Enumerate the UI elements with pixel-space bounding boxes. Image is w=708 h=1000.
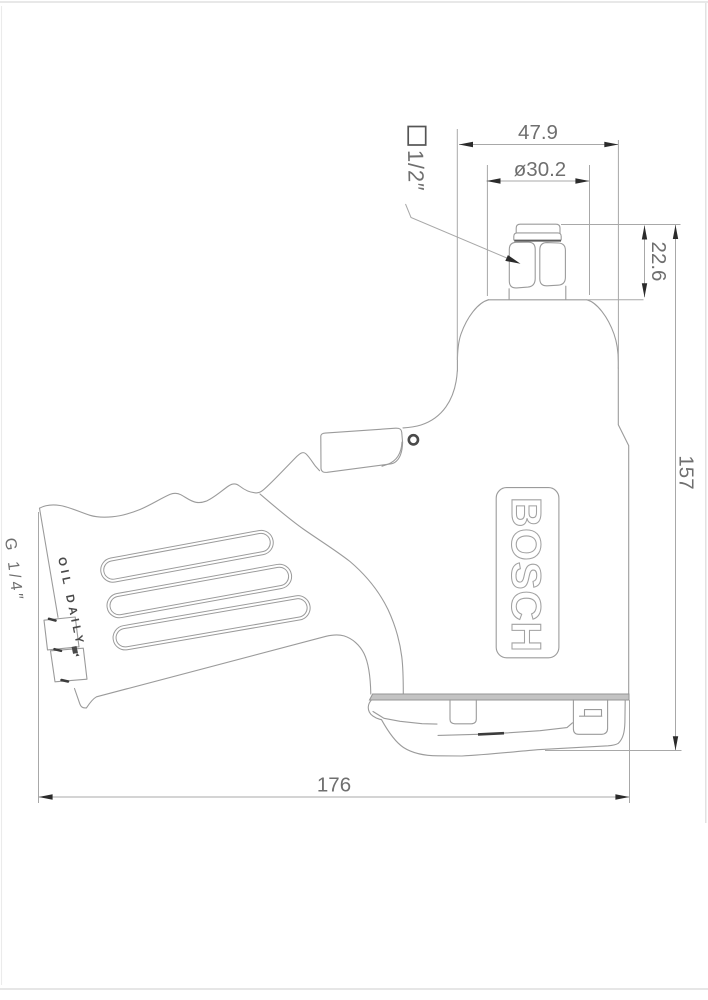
svg-text:157: 157 (675, 455, 698, 489)
svg-text:176: 176 (317, 774, 351, 797)
svg-text:47.9: 47.9 (518, 121, 558, 144)
svg-text:22.6: 22.6 (647, 242, 670, 282)
svg-text:OIL DAILY: OIL DAILY (55, 556, 86, 648)
svg-text:BOSCH: BOSCH (503, 497, 550, 653)
svg-text:ø30.2: ø30.2 (514, 158, 566, 181)
svg-text:1/2″: 1/2″ (403, 150, 429, 192)
svg-text:G 1/4″: G 1/4″ (1, 537, 26, 604)
